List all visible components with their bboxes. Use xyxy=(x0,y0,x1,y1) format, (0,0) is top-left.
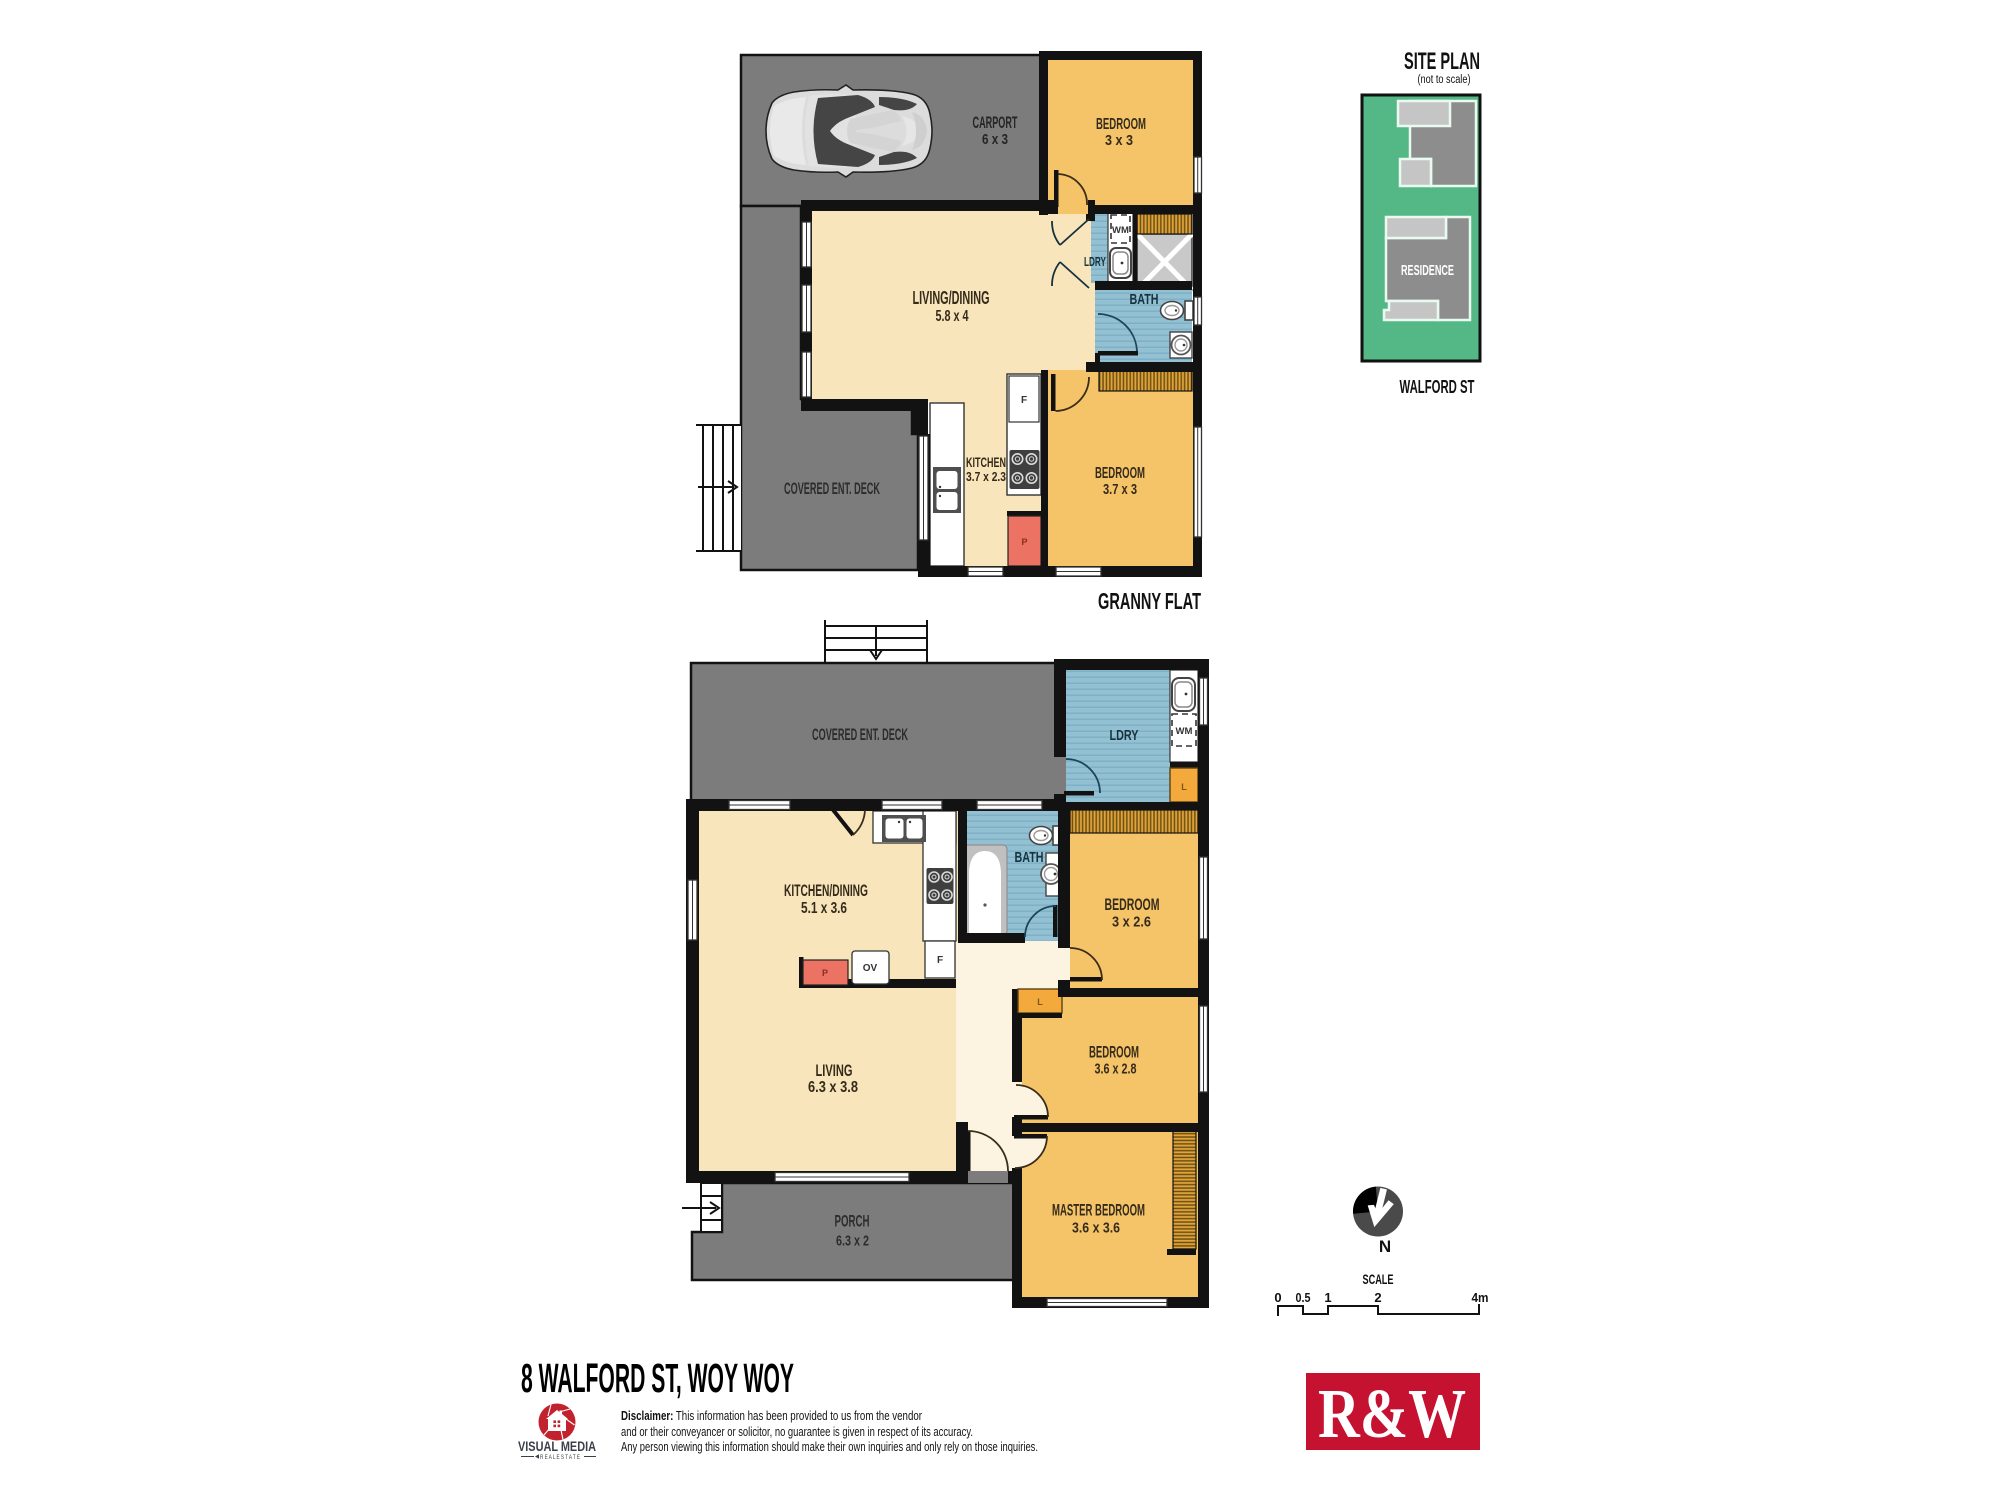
svg-text:BEDROOM: BEDROOM xyxy=(1089,1044,1139,1062)
svg-text:GRANNY FLAT: GRANNY FLAT xyxy=(1098,588,1201,614)
svg-text:BATH: BATH xyxy=(1130,292,1159,308)
svg-text:R&W: R&W xyxy=(1318,1376,1466,1453)
svg-text:F: F xyxy=(937,955,943,966)
svg-text:3.7 x 2.3: 3.7 x 2.3 xyxy=(966,469,1006,484)
svg-text:6 x 3: 6 x 3 xyxy=(982,131,1008,148)
svg-text:3.6 x 3.6: 3.6 x 3.6 xyxy=(1072,1220,1120,1237)
svg-text:3 x 3: 3 x 3 xyxy=(1105,132,1133,149)
svg-text:COVERED ENT. DECK: COVERED ENT. DECK xyxy=(812,725,908,744)
svg-text:and or their conveyancer or so: and or their conveyancer or solicitor, n… xyxy=(621,1424,973,1439)
svg-text:PORCH: PORCH xyxy=(835,1213,870,1231)
svg-text:SITE PLAN: SITE PLAN xyxy=(1404,48,1480,75)
svg-text:L: L xyxy=(1037,997,1043,1007)
svg-text:WALFORD ST: WALFORD ST xyxy=(1400,377,1475,397)
svg-text:SCALE: SCALE xyxy=(1363,1272,1394,1287)
svg-text:3 x 2.6: 3 x 2.6 xyxy=(1112,914,1151,931)
svg-text:RESIDENCE: RESIDENCE xyxy=(1401,262,1454,279)
svg-text:MASTER BEDROOM: MASTER BEDROOM xyxy=(1052,1202,1145,1220)
svg-text:5.1 x 3.6: 5.1 x 3.6 xyxy=(801,900,847,917)
svg-text:L: L xyxy=(1181,782,1187,792)
svg-text:LIVING/DINING: LIVING/DINING xyxy=(913,288,990,308)
svg-text:6.3 x 3.8: 6.3 x 3.8 xyxy=(808,1079,858,1096)
svg-text:R E A L E S T A T E: R E A L E S T A T E xyxy=(540,1454,580,1461)
svg-text:OV: OV xyxy=(863,963,878,974)
svg-text:LIVING: LIVING xyxy=(816,1061,853,1080)
svg-text:BEDROOM: BEDROOM xyxy=(1105,896,1160,914)
svg-text:5.8 x 4: 5.8 x 4 xyxy=(936,308,969,325)
svg-text:Any person viewing this inform: Any person viewing this information shou… xyxy=(621,1439,1038,1454)
svg-text:4m: 4m xyxy=(1472,1290,1489,1305)
svg-text:WM: WM xyxy=(1112,225,1129,236)
svg-text:P: P xyxy=(1021,537,1027,547)
svg-text:(not to scale): (not to scale) xyxy=(1418,74,1471,86)
svg-text:WM: WM xyxy=(1176,726,1193,737)
svg-text:0.5: 0.5 xyxy=(1296,1290,1311,1305)
svg-text:F: F xyxy=(1021,395,1027,406)
svg-text:2: 2 xyxy=(1374,1290,1381,1305)
svg-text:CARPORT: CARPORT xyxy=(973,113,1018,132)
svg-text:BEDROOM: BEDROOM xyxy=(1095,465,1145,482)
svg-text:BATH: BATH xyxy=(1015,850,1044,866)
svg-text:KITCHEN: KITCHEN xyxy=(966,455,1006,470)
svg-text:3.7 x 3: 3.7 x 3 xyxy=(1103,481,1137,498)
svg-text:BEDROOM: BEDROOM xyxy=(1096,116,1146,133)
svg-text:KITCHEN/DINING: KITCHEN/DINING xyxy=(784,881,868,900)
svg-text:COVERED ENT. DECK: COVERED ENT. DECK xyxy=(784,479,880,498)
svg-text:LDRY: LDRY xyxy=(1110,728,1139,744)
svg-text:VISUAL MEDIA: VISUAL MEDIA xyxy=(518,1438,596,1454)
svg-text:LDRY: LDRY xyxy=(1084,254,1106,269)
svg-text:P: P xyxy=(822,968,828,978)
svg-text:0: 0 xyxy=(1274,1290,1281,1305)
svg-text:Disclaimer: This information h: Disclaimer: This information has been pr… xyxy=(621,1408,923,1423)
svg-text:1: 1 xyxy=(1324,1290,1331,1305)
svg-text:6.3 x 2: 6.3 x 2 xyxy=(836,1233,869,1250)
svg-text:3.6 x 2.8: 3.6 x 2.8 xyxy=(1095,1061,1137,1078)
svg-text:8 WALFORD ST, WOY WOY: 8 WALFORD ST, WOY WOY xyxy=(521,1355,794,1401)
svg-text:N: N xyxy=(1379,1237,1391,1256)
